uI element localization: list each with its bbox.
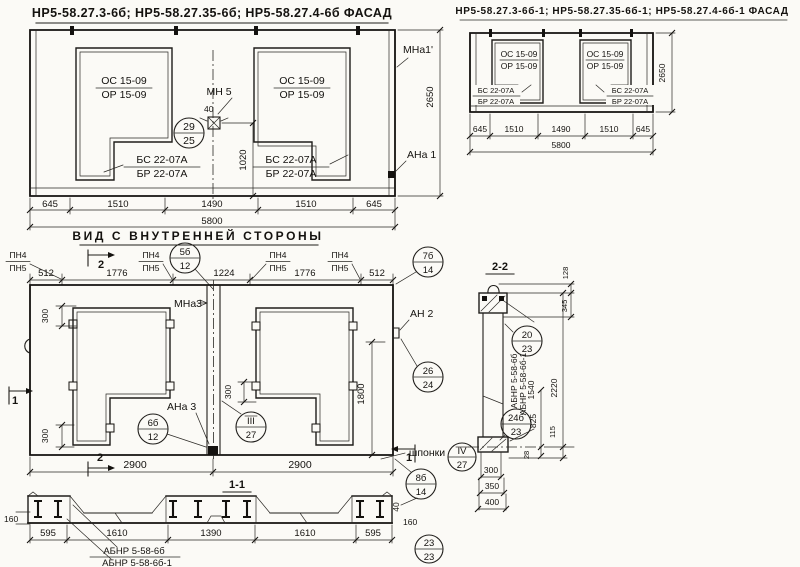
- dim-text: 1776: [106, 268, 127, 279]
- dim-40: 40: [391, 502, 401, 512]
- dim-text: 645: [366, 199, 382, 210]
- anchor-label-mn5: МН 5: [206, 86, 231, 98]
- anchor-label-ana1: АНа 1: [407, 149, 436, 161]
- dim-text: 300: [40, 309, 50, 323]
- callout-top: IV: [458, 446, 468, 457]
- dim-text: 300: [484, 465, 498, 475]
- callout-top: 20: [522, 330, 533, 341]
- window-mark: ОС 15-09: [587, 49, 624, 59]
- callout-top: 6б: [148, 418, 159, 429]
- dim-height-2650: 2650: [425, 86, 436, 107]
- dim-stack-bottom: 300 350 400: [475, 452, 509, 512]
- dim-chain-bottom: 645 1510 1490 1510 645 5800: [467, 114, 656, 155]
- dim-text: 350: [485, 481, 499, 491]
- dim-300-bottom: 300: [40, 422, 74, 450]
- facade-right-title: НР5-58.27.3-6б-1; НР5-58.27.35-6б-1; НР5…: [455, 5, 788, 17]
- callout-top: 23: [424, 538, 435, 549]
- dim-text: 1490: [201, 199, 222, 210]
- inner-view: 512 1776 1224 1776 512 ПН4 ПН5 ПН4 ПН5 П…: [6, 243, 476, 505]
- window-mark: ОР 15-09: [280, 89, 325, 101]
- section-number: 1: [406, 452, 412, 464]
- dim-300-top: 300: [40, 303, 76, 329]
- dim-text: 345: [560, 300, 569, 313]
- balcony-mark: БР 22-07А: [612, 97, 648, 106]
- dim-text: 1800: [356, 383, 367, 404]
- dim-chain-bottom: 595 1610 1390 1610 595: [27, 525, 395, 543]
- dim-text: 2220: [549, 378, 559, 397]
- anchor-label-mna3: МНа3: [174, 298, 202, 310]
- anchor-plate: [388, 171, 395, 178]
- dim-text: 1510: [600, 124, 619, 134]
- callout-bot: 14: [416, 487, 427, 498]
- callout-top: 5б: [180, 247, 191, 258]
- section-1-1: 1-1 160 160 40 595 1610 1390 1610 595 АБ…: [4, 479, 443, 567]
- dim-text: 2900: [123, 459, 147, 471]
- window-mark: ОС 15-09: [279, 75, 325, 87]
- callout-top: 29: [183, 121, 195, 133]
- section-number: 2: [97, 452, 103, 464]
- pn4-label: ПН4: [10, 250, 27, 260]
- callout-bot: 23: [522, 344, 533, 355]
- ana3-plate: [208, 446, 218, 455]
- callout-bot: 12: [180, 261, 191, 272]
- dim-text: 512: [38, 268, 54, 279]
- blueprint-svg: НР5-58.27.3-6б; НР5-58.27.35-6б; НР5-58.…: [0, 0, 800, 567]
- dim-text: 300: [40, 429, 50, 443]
- callout-bot: 24: [423, 380, 434, 391]
- section-number: 1: [12, 395, 18, 407]
- callout-top: 7б: [423, 251, 434, 262]
- balcony-mark: БС 22-07А: [612, 86, 649, 95]
- balcony-mark: БС 22-07А: [478, 86, 515, 95]
- balcony-mark: БР 22-07А: [137, 168, 188, 180]
- callout-bot: 14: [423, 265, 434, 276]
- dim-text: 1776: [294, 268, 315, 279]
- callout-top: III: [247, 416, 255, 427]
- callout-bot: 23: [511, 427, 522, 438]
- dim-160-right: 160: [403, 517, 417, 527]
- dim-chain-bottom: 2900 2900: [27, 457, 396, 476]
- dim-text: 645: [42, 199, 58, 210]
- pn4-label: ПН4: [270, 250, 287, 260]
- balcony-mark: БР 22-07А: [478, 97, 514, 106]
- anchor-label-mna1: МНа1': [403, 44, 433, 56]
- pn5-label: ПН5: [143, 263, 160, 273]
- panel-outline: [30, 285, 393, 455]
- section-title: 1-1: [229, 479, 245, 491]
- dim-1540: 1540: [526, 380, 536, 399]
- dim-text: 1610: [106, 528, 127, 539]
- dim-total: 5800: [201, 216, 222, 227]
- pn4-label: ПН4: [143, 250, 160, 260]
- dim-text: 1610: [294, 528, 315, 539]
- dim-text: 128: [561, 267, 570, 280]
- inner-view-caption: ВИД С ВНУТРЕННЕЙ СТОРОНЫ: [72, 228, 323, 243]
- dim-text: 1510: [295, 199, 316, 210]
- section-title: 2-2: [492, 261, 508, 273]
- dim-text: 1510: [107, 199, 128, 210]
- dim-text: 595: [365, 528, 381, 539]
- window-mark: ОР 15-09: [501, 61, 538, 71]
- callout-top: 8б: [416, 473, 427, 484]
- dim-text: 115: [548, 426, 557, 438]
- dim-text: 2900: [288, 459, 312, 471]
- balcony-mark: БР 22-07А: [266, 168, 317, 180]
- callout-top: 26: [423, 366, 434, 377]
- dim-text: 1390: [200, 528, 221, 539]
- dim-text: 595: [40, 528, 56, 539]
- callout-bot: 12: [148, 432, 159, 443]
- window-mark: ОС 15-09: [501, 49, 538, 59]
- callout-bot: 23: [424, 552, 435, 563]
- callout-top: 24б: [508, 413, 525, 424]
- callout-bot: 27: [457, 460, 468, 471]
- dim-height-2650: 2650: [657, 63, 667, 82]
- section-2-2: 2-2 АБНР 5-58-6б АБНР 5-58-6б-1 1540 825…: [468, 261, 574, 512]
- window-mark: ОР 15-09: [587, 61, 624, 71]
- callout-bot: 25: [183, 135, 195, 147]
- dim-text: 400: [485, 497, 499, 507]
- anchor-label-ana3: АНа 3: [167, 401, 196, 413]
- anchor-label-an2: АН 2: [410, 308, 434, 320]
- pn5-label: ПН5: [10, 263, 27, 273]
- dim-text: 512: [369, 268, 385, 279]
- anchor-dim-40: 40: [204, 104, 214, 114]
- drawing-sheet: НР5-58.27.3-6б; НР5-58.27.35-6б; НР5-58.…: [0, 0, 800, 567]
- panel-mark-label: АБНР 5-58-6б-1: [102, 558, 172, 567]
- panel-body: [479, 313, 507, 437]
- connection-tabs: [69, 320, 357, 432]
- facade-left: НР5-58.27.3-6б; НР5-58.27.35-6б; НР5-58.…: [27, 6, 443, 245]
- channel-anchor-symbols: [34, 501, 384, 517]
- pn5-label: ПН5: [332, 263, 349, 273]
- dim-total: 5800: [552, 140, 571, 150]
- window-mark: ОР 15-09: [102, 89, 147, 101]
- dim-text: 1224: [213, 268, 234, 279]
- dim-text: 645: [636, 124, 650, 134]
- dim-text: 1510: [505, 124, 524, 134]
- opening-right: [256, 308, 353, 445]
- dim-300-right: 300: [223, 379, 256, 405]
- balcony-mark: БС 22-07А: [136, 154, 187, 166]
- dim-text: 645: [473, 124, 487, 134]
- dim-text: 300: [223, 385, 233, 399]
- pn5-label: ПН5: [270, 263, 287, 273]
- pn4-label: ПН4: [332, 250, 349, 260]
- dim-160-left: 160: [4, 514, 18, 524]
- dim-1020: 1020: [238, 149, 249, 170]
- balcony-mark: БС 22-07А: [265, 154, 316, 166]
- facade-left-title: НР5-58.27.3-6б; НР5-58.27.35-6б; НР5-58.…: [32, 6, 392, 20]
- lifting-loop: [488, 286, 499, 294]
- panel-mark-label: АБНР 5-58-6б: [103, 546, 165, 557]
- facade-right: НР5-58.27.3-6б-1; НР5-58.27.35-6б-1; НР5…: [455, 5, 788, 155]
- section-number: 2: [98, 259, 104, 271]
- callout-bot: 27: [246, 430, 257, 441]
- dim-chain-bottom: 645 1510 1490 1510 645 5800: [27, 198, 398, 230]
- dim-text: 825: [528, 414, 538, 428]
- dim-text: 28: [522, 451, 531, 459]
- dim-1800: 1800: [356, 339, 385, 458]
- dim-text: 1490: [552, 124, 571, 134]
- window-mark: ОС 15-09: [101, 75, 147, 87]
